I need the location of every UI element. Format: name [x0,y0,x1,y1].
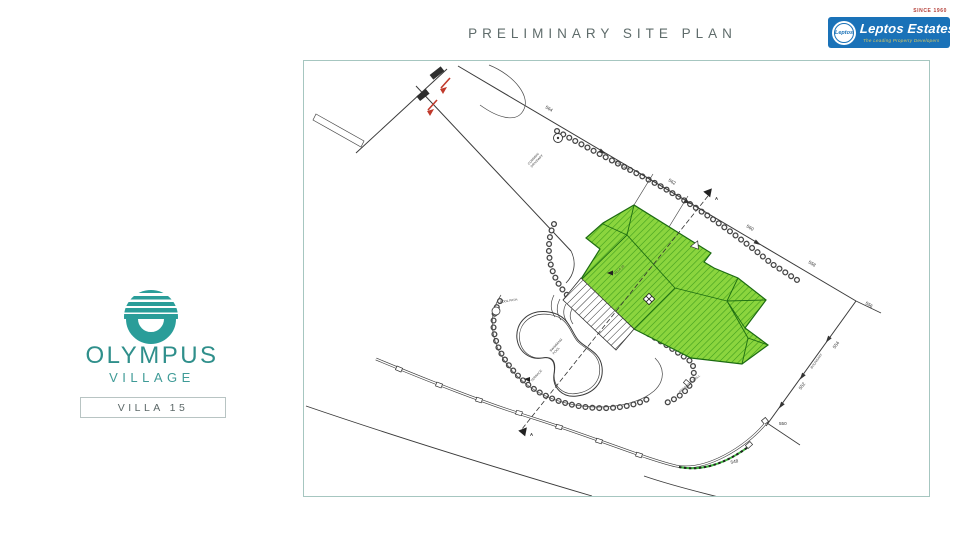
leptos-badge-icon: Leptos [832,21,856,45]
brand-since-text: SINCE 1960 [828,8,947,14]
plan-frame: COMMON DRIVEWAY POOL PATH [303,60,930,497]
contour-label: 552 [798,381,807,390]
project-name: OLYMPUS [40,344,264,368]
villa-number-label: VILLA 15 [118,402,189,414]
driveway-label: COMMON DRIVEWAY [527,150,545,168]
villa-number-box: VILLA 15 [80,397,226,418]
section-label-top: A [715,196,718,201]
site-plan-drawing: COMMON DRIVEWAY POOL PATH [304,61,929,496]
boundary-label-right: BOUNDARY [810,352,824,370]
pool-label: SWIMMING POOL [549,337,567,356]
contour-label: 554 [832,340,841,349]
fence-line: RETAINING WALL [376,359,765,468]
road-lines [306,406,726,496]
project-subname: VILLAGE [40,371,264,384]
contour-label: 548 [730,458,739,465]
contour-label: 558 [807,260,817,268]
wall-label: RETAINING WALL [678,373,701,393]
pool-path-label: POOL PATH [500,297,519,304]
driveway: COMMON DRIVEWAY [313,65,574,283]
brand-name: Leptos Estates [859,21,955,36]
olympus-logo-icon [121,287,181,345]
manhole-icon [554,134,563,143]
contour-label: 550 [779,421,787,426]
brand-tagline: The Leading Property Developers [863,38,940,43]
leptos-badge-label: Leptos [834,23,854,43]
leptos-estates-logo: Leptos Leptos Estates The Leading Proper… [828,17,950,48]
section-label-bottom: A [530,432,533,437]
contour-label: 560 [745,224,755,232]
terrace-label: TERRACE [530,369,543,383]
contour-label: 562 [667,178,677,186]
contour-label: 564 [544,105,554,113]
